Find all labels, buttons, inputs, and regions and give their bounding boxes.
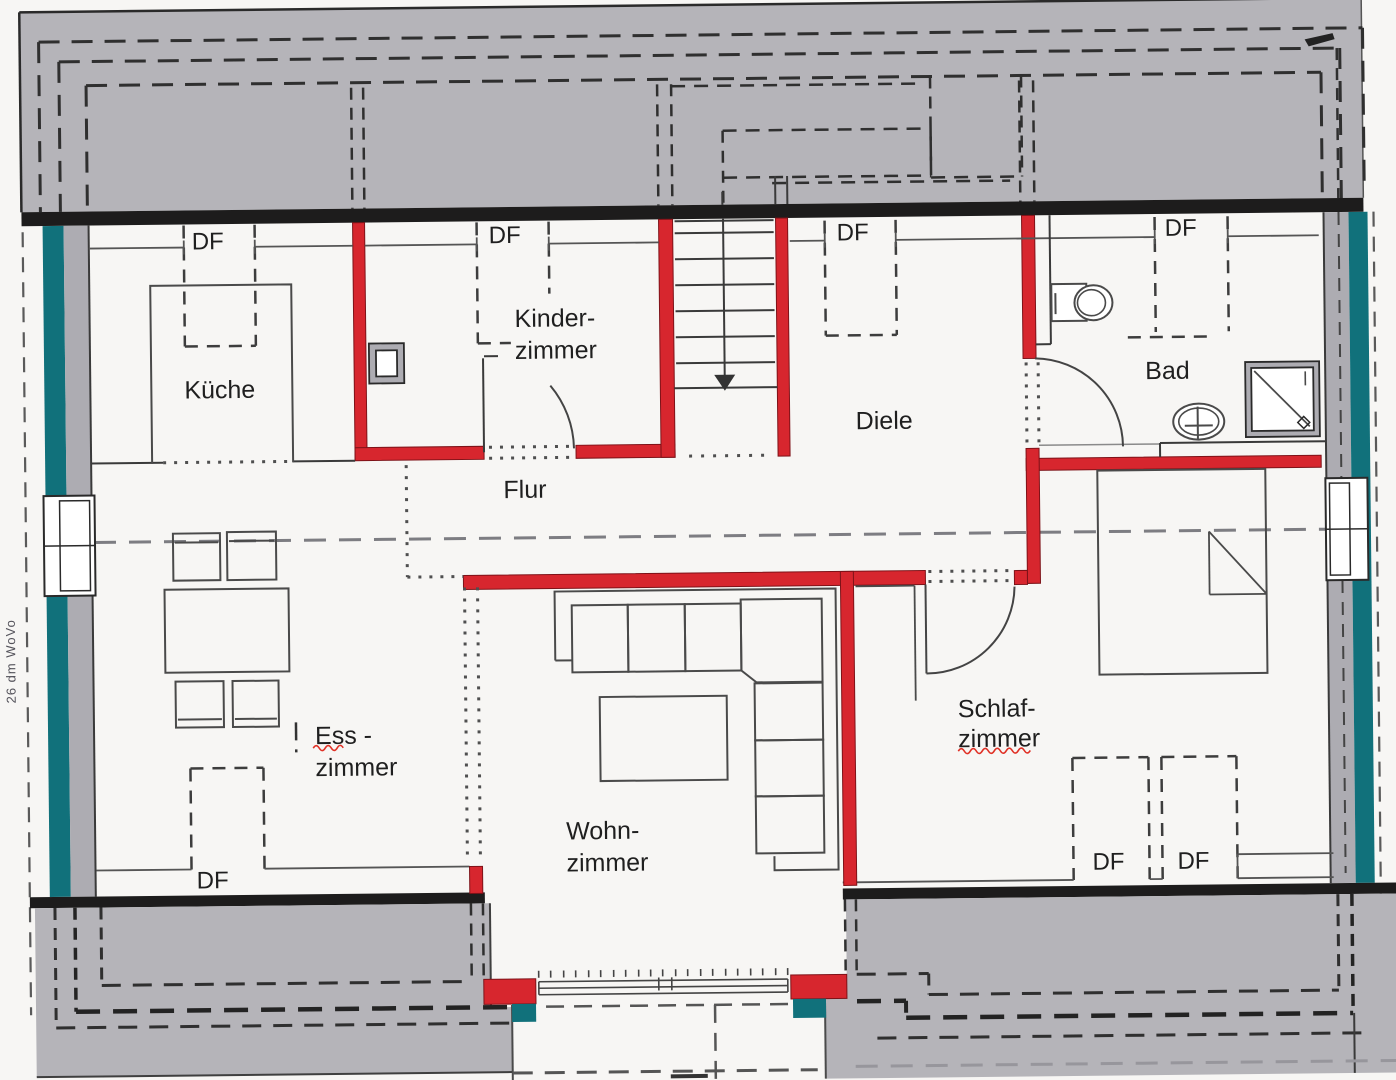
- svg-text:zimmer: zimmer: [566, 849, 648, 878]
- svg-text:Ess -: Ess -: [315, 722, 372, 751]
- svg-text:zimmer: zimmer: [315, 753, 397, 782]
- svg-text:Schlaf-: Schlaf-: [958, 694, 1036, 723]
- svg-text:DF: DF: [1177, 847, 1209, 874]
- svg-text:DF: DF: [1165, 215, 1197, 242]
- svg-text:Wohn-: Wohn-: [566, 817, 639, 846]
- svg-text:DF: DF: [1092, 848, 1124, 875]
- svg-text:Bad: Bad: [1145, 357, 1190, 385]
- svg-text:Flur: Flur: [503, 476, 546, 504]
- svg-text:DF: DF: [489, 222, 521, 249]
- svg-text:Küche: Küche: [184, 376, 255, 405]
- svg-text:DF: DF: [197, 867, 229, 894]
- svg-text:Kinder-: Kinder-: [514, 304, 595, 333]
- svg-text:zimmer: zimmer: [515, 336, 597, 365]
- svg-text:DF: DF: [837, 219, 869, 246]
- svg-text:Diele: Diele: [856, 407, 913, 436]
- svg-text:DF: DF: [192, 228, 224, 255]
- svg-text:26 dm WoVo: 26 dm WoVo: [3, 619, 19, 703]
